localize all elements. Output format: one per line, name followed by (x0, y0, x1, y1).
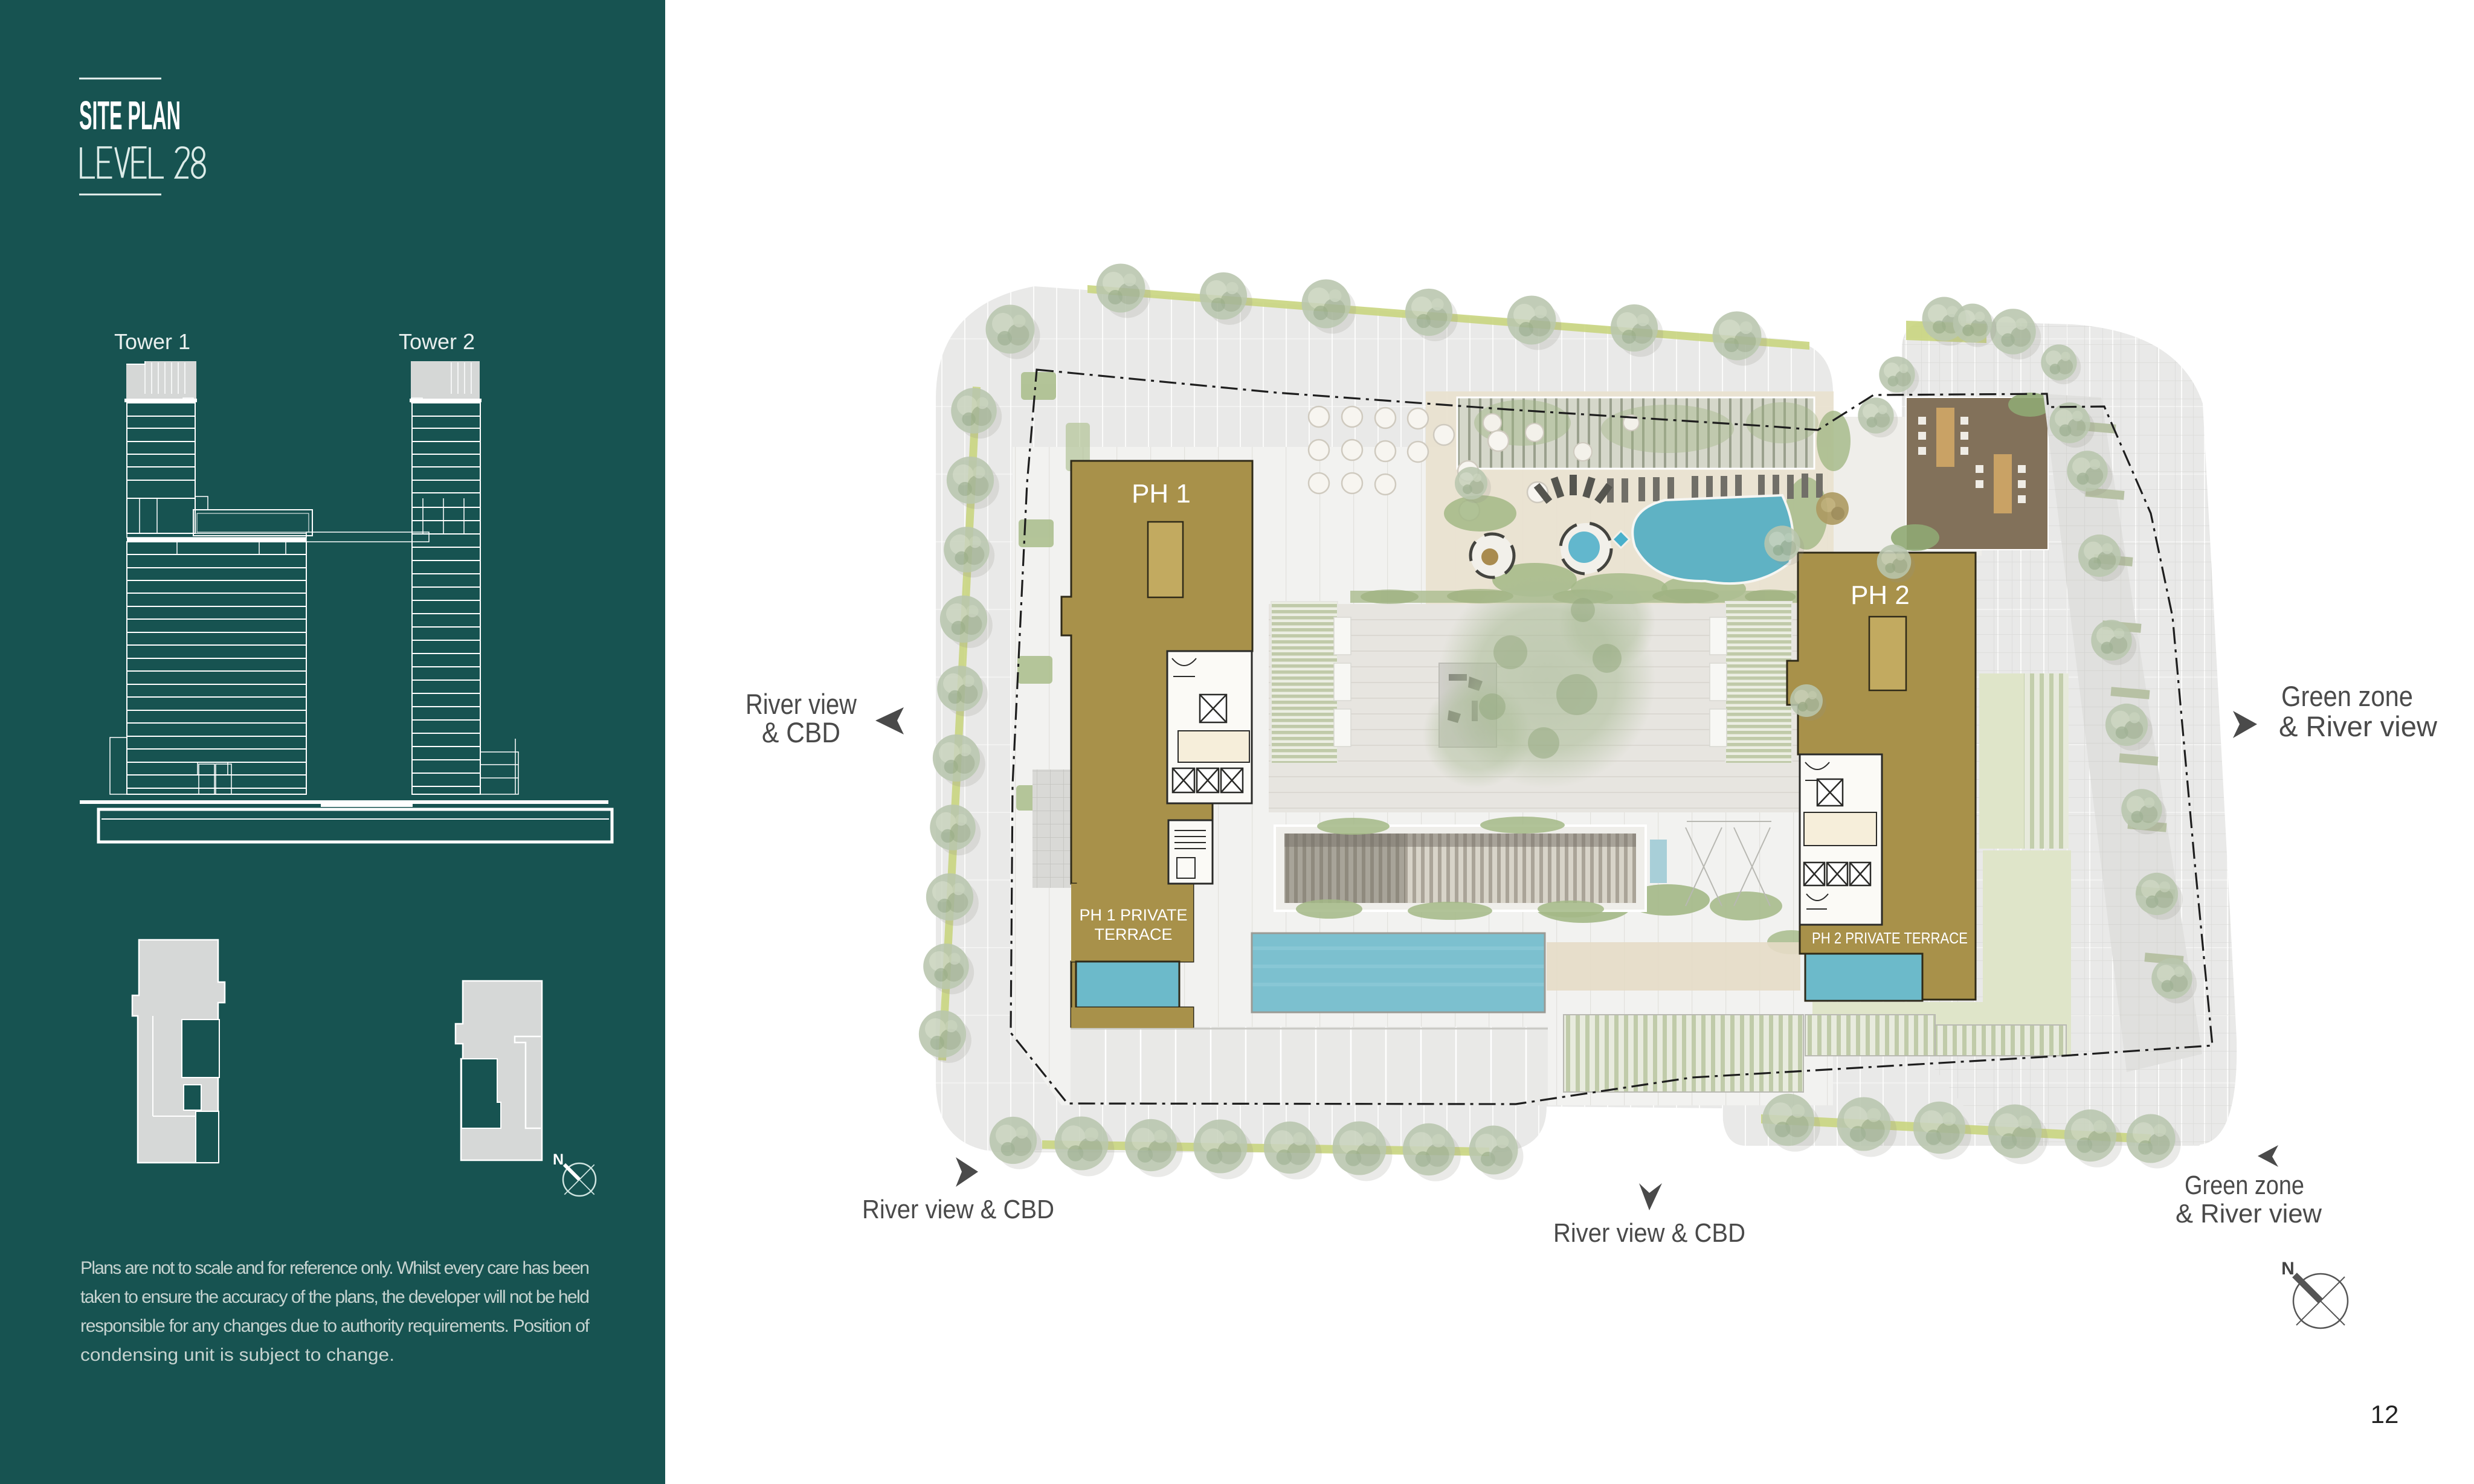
svg-text:River view & CBD: River view & CBD (862, 1195, 1054, 1224)
svg-text:condensing unit is subject to: condensing unit is subject to change. (80, 1345, 395, 1365)
svg-text:Tower 2: Tower 2 (399, 329, 475, 354)
svg-text:responsible for any changes du: responsible for any changes due to autho… (80, 1316, 590, 1336)
svg-text:Green zone: Green zone (2185, 1171, 2304, 1200)
svg-text:N: N (2281, 1259, 2295, 1279)
svg-text:& River view: & River view (2176, 1199, 2322, 1229)
svg-text:River view & CBD: River view & CBD (1553, 1218, 1745, 1248)
svg-text:PH 2: PH 2 (1851, 580, 1910, 610)
svg-text:Green zone: Green zone (2281, 680, 2413, 712)
svg-text:Tower 1: Tower 1 (114, 329, 190, 354)
svg-text:12: 12 (2371, 1400, 2399, 1428)
svg-text:taken to ensure the accuracy o: taken to ensure the accuracy of the plan… (80, 1287, 590, 1307)
svg-text:PH 2 PRIVATE TERRACE: PH 2 PRIVATE TERRACE (1812, 929, 1968, 947)
svg-text:SITE PLAN: SITE PLAN (79, 93, 181, 138)
svg-text:PH 1 PRIVATE: PH 1 PRIVATE (1079, 906, 1187, 924)
svg-text:PH 1: PH 1 (1132, 479, 1191, 509)
svg-text:River view: River view (746, 688, 857, 720)
svg-text:Plans are not to scale and for: Plans are not to scale and for reference… (80, 1258, 590, 1278)
svg-text:TERRACE: TERRACE (1094, 925, 1172, 943)
svg-text:N: N (553, 1151, 564, 1168)
svg-text:& River view: & River view (2279, 710, 2438, 742)
svg-text:& CBD: & CBD (762, 716, 840, 748)
